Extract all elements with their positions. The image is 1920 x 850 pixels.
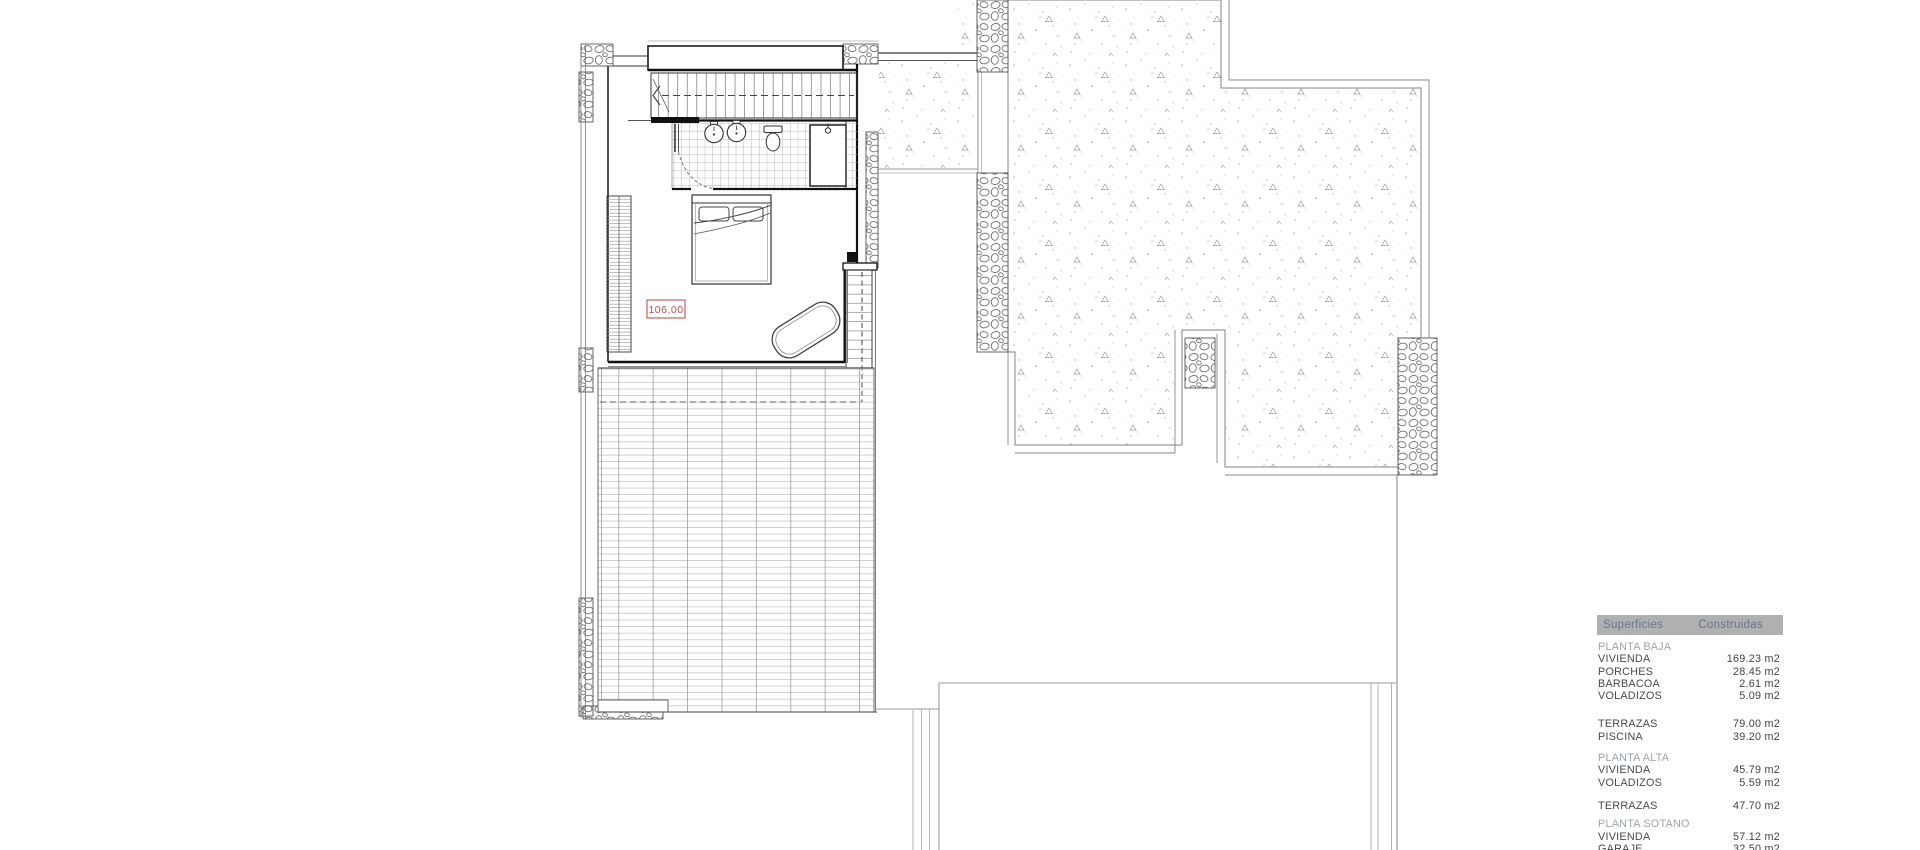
table-row-value: 79.00 m2 [1733,718,1780,730]
areas-table-col-construidas: Construidas [1698,619,1763,631]
table-row-value: 32.50 m2 [1733,843,1780,850]
table-row-label: PLANTA ALTA [1598,752,1669,764]
table-row-label: VIVIENDA [1598,831,1650,843]
table-row-value: 2.61 m2 [1739,678,1780,690]
table-row-value: 5.09 m2 [1739,690,1780,702]
table-row-value: 45.79 m2 [1733,764,1780,776]
table-row-value: 28.45 m2 [1733,666,1780,678]
terrain-corridor [879,61,978,168]
table-row-value: 5.59 m2 [1739,777,1780,789]
table-row-label: TERRAZAS [1598,718,1658,730]
table-row-value: 47.70 m2 [1733,800,1780,812]
table-spacer [1597,743,1783,752]
lower-structure-outline [875,475,1397,850]
stone-wall-segment [843,44,878,64]
stone-wall-segment [866,132,878,268]
stone-wall-segment [977,173,1008,352]
table-spacer [1597,789,1783,800]
table-item-row: VIVIENDA45.79 m2 [1597,764,1783,776]
top-wall [648,46,843,70]
table-row-label: VIVIENDA [1598,764,1650,776]
table-section-row: PLANTA ALTA [1597,752,1783,764]
table-item-row: PISCINA39.20 m2 [1597,731,1783,743]
louvre-window-strip [607,196,631,352]
table-row-label: VIVIENDA [1598,653,1650,665]
table-section-row: PLANTA SOTANO [1597,818,1783,830]
table-item-row: PORCHES28.45 m2 [1597,666,1783,678]
table-item-row: GARAJE32.50 m2 [1597,843,1783,850]
level-label: 106,00 [647,300,685,318]
wall-pillar [847,252,856,262]
pillow [699,207,729,221]
table-item-row: VOLADIZOS5.59 m2 [1597,777,1783,789]
table-row-label: PISCINA [1598,731,1643,743]
table-row-value: 169.23 m2 [1727,653,1780,665]
table-spacer [1597,702,1783,718]
table-row-label: PLANTA SOTANO [1598,818,1690,830]
areas-table-rows: PLANTA BAJAVIVIENDA169.23 m2PORCHES28.45… [1597,635,1783,850]
table-row-value: 57.12 m2 [1733,831,1780,843]
terrain-boundary [1008,0,1421,467]
bathtub-icon [766,297,845,364]
table-item-row: VOLADIZOS5.09 m2 [1597,690,1783,702]
staircase [628,73,857,123]
areas-table-col-superficies: Superficies [1603,619,1663,631]
stone-wall-segment [1398,338,1437,475]
terrain-gravel-area [878,0,1429,475]
table-row-label: VOLADIZOS [1598,690,1662,702]
table-item-row: BARBACOA2.61 m2 [1597,678,1783,690]
wall-joint [613,56,648,66]
deck-step-notch [599,701,668,712]
table-row-label: PORCHES [1598,666,1653,678]
terrace-deck [598,368,877,712]
table-row-value: 39.20 m2 [1733,731,1780,743]
table-row-label: VOLADIZOS [1598,777,1662,789]
table-row-label: BARBACOA [1598,678,1660,690]
stone-wall-segment [977,0,1008,72]
bathroom [672,121,857,190]
floor-plan-page: 106,00 [0,0,1920,850]
stair-wall-bar [651,117,699,123]
table-row-label: GARAJE [1598,843,1643,850]
terrain-top-left-bit [958,0,978,45]
shower-icon [810,124,846,187]
level-value-label: 106,00 [648,304,683,316]
bed [692,195,771,284]
areas-table-header: Superficies Construidas [1597,615,1783,635]
table-item-row: VIVIENDA57.12 m2 [1597,831,1783,843]
table-item-row: TERRAZAS79.00 m2 [1597,718,1783,730]
stone-wall-segment [1185,338,1215,388]
bedroom: 106,00 [607,195,846,363]
table-row-label: TERRAZAS [1598,800,1658,812]
table-section-row: PLANTA BAJA [1597,641,1783,653]
wall-cap [843,263,877,270]
table-item-row: TERRAZAS47.70 m2 [1597,800,1783,812]
areas-table: Superficies Construidas PLANTA BAJAVIVIE… [1597,615,1783,850]
table-item-row: VIVIENDA169.23 m2 [1597,653,1783,665]
table-row-label: PLANTA BAJA [1598,641,1671,653]
